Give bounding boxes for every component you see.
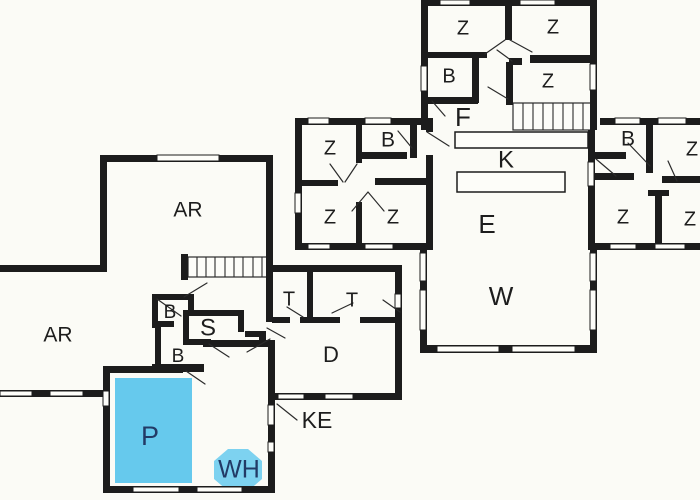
room-label-z-top-3: Z bbox=[542, 70, 554, 92]
floor-plan-canvas: AR AR B S B T T D P WH KE Z Z B Z F Z B … bbox=[0, 0, 700, 500]
room-label-t1: T bbox=[283, 288, 295, 310]
room-label-z-e2: Z bbox=[617, 206, 629, 228]
room-label-ar-left: AR bbox=[43, 324, 72, 347]
room-label-z-e3: Z bbox=[684, 208, 696, 230]
room-label-z-w2: Z bbox=[324, 206, 336, 228]
room-label-b-mid-upper: B bbox=[164, 302, 177, 323]
door-swings bbox=[157, 40, 677, 420]
room-label-d: D bbox=[323, 342, 339, 367]
room-label-b-w: B bbox=[381, 129, 395, 152]
room-label-f: F bbox=[455, 102, 471, 132]
room-label-z-w3: Z bbox=[387, 206, 399, 228]
room-label-ar-top: AR bbox=[173, 199, 202, 222]
room-label-s: S bbox=[200, 314, 216, 341]
room-label-z-top-1: Z bbox=[457, 17, 469, 39]
room-label-b-top: B bbox=[442, 65, 455, 87]
room-label-t2: T bbox=[346, 289, 358, 311]
room-label-b-e: B bbox=[621, 128, 635, 151]
room-label-k: K bbox=[498, 146, 514, 173]
kitchen-counter-top bbox=[455, 132, 588, 148]
room-label-ke: KE bbox=[302, 407, 333, 433]
staircase-outline bbox=[188, 257, 272, 277]
room-label-b-mid-lower: B bbox=[172, 346, 185, 367]
room-label-e: E bbox=[478, 209, 495, 239]
room-label-w: W bbox=[489, 281, 514, 311]
room-label-z-top-2: Z bbox=[547, 16, 559, 38]
room-label-p: P bbox=[141, 421, 159, 451]
room-label-wh: WH bbox=[218, 456, 260, 484]
staircase-upper bbox=[513, 103, 593, 130]
floor-plan-drawing: AR AR B S B T T D P WH KE Z Z B Z F Z B … bbox=[0, 0, 700, 500]
room-label-z-w1: Z bbox=[324, 137, 336, 159]
room-label-z-e1: Z bbox=[686, 138, 698, 160]
kitchen-island bbox=[457, 172, 565, 192]
staircase-lower bbox=[188, 257, 272, 277]
